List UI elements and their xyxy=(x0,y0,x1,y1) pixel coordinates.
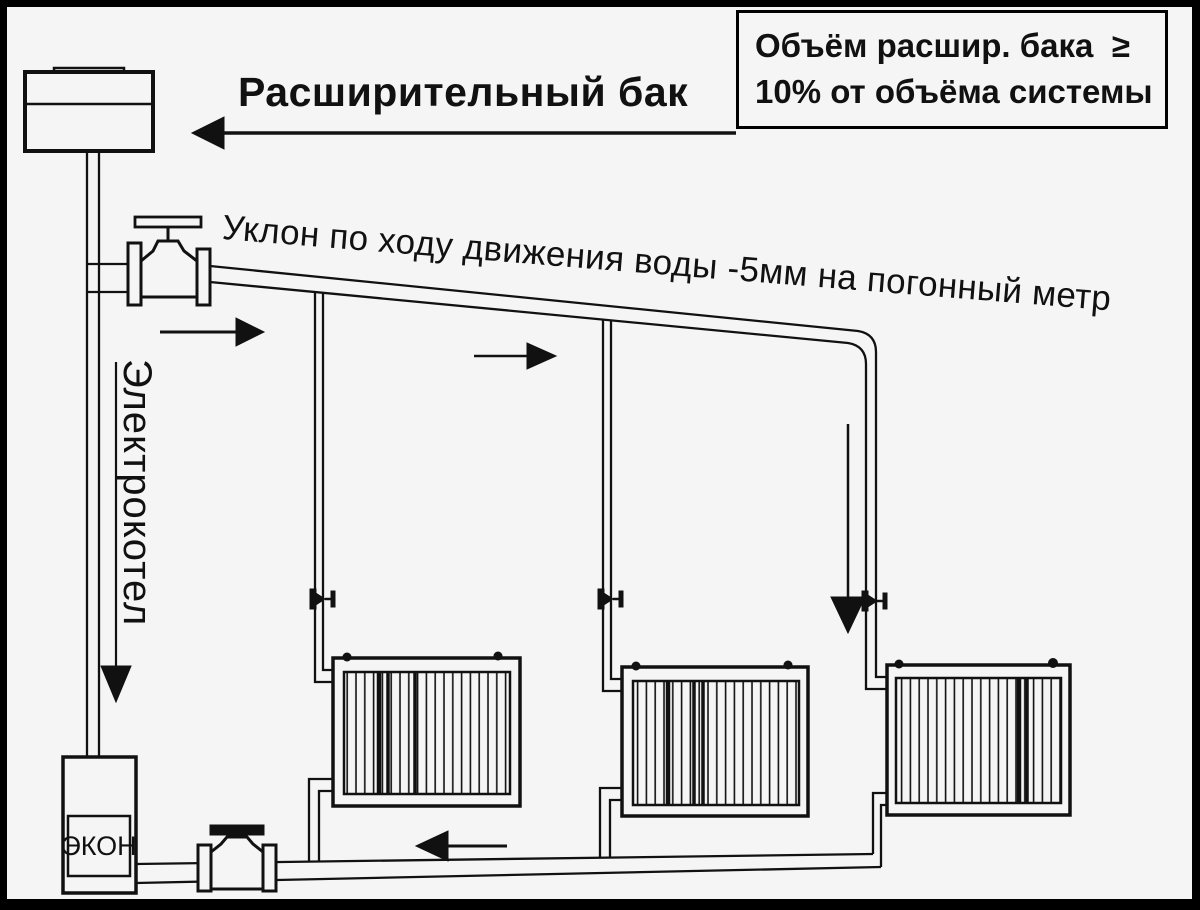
riser-valve-handle xyxy=(883,593,887,609)
riser-valve-handle xyxy=(619,591,623,607)
riser-valve-handle xyxy=(331,591,335,607)
expansion-tank-body xyxy=(25,72,153,151)
radiator-fins xyxy=(896,678,1061,803)
arrow-head-left xyxy=(192,117,224,149)
expansion-tank-arrow xyxy=(192,117,736,149)
note-line-1: Объём расшир. бака ≥ xyxy=(755,23,1165,69)
boiler-unit-label: ЭКОН xyxy=(68,816,130,876)
valve-handle xyxy=(135,217,201,227)
frame-top xyxy=(0,0,1200,7)
riser-valves xyxy=(310,589,887,611)
radiator2-return-b xyxy=(610,800,622,858)
radiator2-drop-left xyxy=(603,320,622,691)
boiler-vertical-label: Электрокотел xyxy=(117,359,157,626)
valve-flange-left xyxy=(198,845,211,891)
arrow-head-down xyxy=(831,597,865,633)
radiator-bolt xyxy=(632,662,641,671)
supply-main-outer xyxy=(210,266,887,677)
valve-body xyxy=(141,241,197,297)
supply-flow-arrow-1 xyxy=(160,318,264,346)
frame-bottom xyxy=(0,899,1200,910)
valve-flange-right xyxy=(263,845,276,891)
expansion-volume-note-box: Объём расшир. бака ≥ 10% от объёма систе… xyxy=(736,10,1168,129)
radiator-bolt xyxy=(343,653,352,662)
radiator-bolt xyxy=(895,660,904,669)
radiator-fins xyxy=(633,681,799,805)
frame-left xyxy=(0,0,7,910)
radiator-bolt xyxy=(784,661,793,670)
radiator-fins xyxy=(344,672,510,794)
radiator-bolt xyxy=(494,652,503,661)
arrow-head-right xyxy=(527,343,556,369)
arrow-head-left xyxy=(416,831,448,861)
schematic-drawing xyxy=(0,0,1200,910)
frame-right xyxy=(1192,0,1200,910)
expansion-tank xyxy=(25,68,153,151)
expansion-tank-title: Расширительный бак xyxy=(238,69,688,116)
valve-flange-left xyxy=(128,243,141,305)
downflow-arrow-right xyxy=(831,424,865,633)
radiator1-return-b xyxy=(319,791,333,862)
return-flow-arrow xyxy=(416,831,507,861)
radiator-2 xyxy=(622,661,808,817)
supply-flow-arrow-2 xyxy=(474,343,556,369)
supply-main-inner xyxy=(210,282,887,689)
valve-flange-right xyxy=(197,249,210,305)
valve-body xyxy=(211,837,263,889)
arrow-head-right xyxy=(236,318,264,346)
valve-handle xyxy=(210,825,264,835)
supply-shutoff-valve xyxy=(128,217,210,305)
radiator2-drop-right xyxy=(611,321,622,679)
heating-system-schematic: Расширительный бак Объём расшир. бака ≥ … xyxy=(0,0,1200,910)
arrow-head-down xyxy=(101,666,131,702)
riser-valve-3 xyxy=(862,591,887,611)
note-line-2: 10% от объёма системы xyxy=(755,69,1165,115)
radiator1-drop-right xyxy=(323,293,333,670)
radiator-1 xyxy=(333,652,520,807)
radiator-3 xyxy=(887,658,1070,815)
return-shutoff-valve xyxy=(198,825,276,891)
radiator-bolt xyxy=(1048,658,1058,668)
